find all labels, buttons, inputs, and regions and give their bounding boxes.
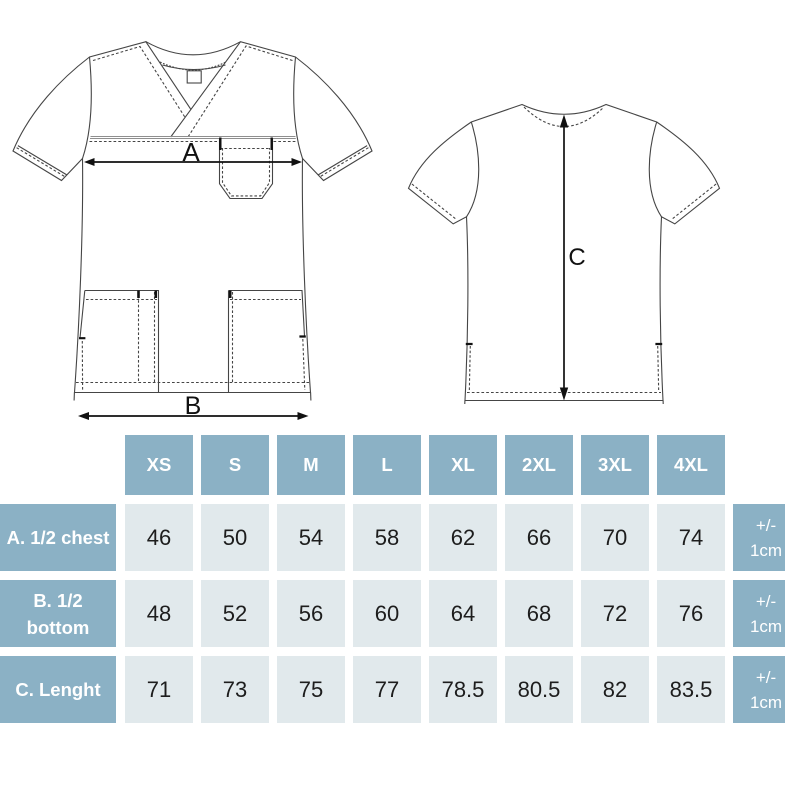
svg-text:C: C xyxy=(568,244,585,271)
svg-text:B: B xyxy=(185,392,202,420)
svg-text:A: A xyxy=(182,137,200,167)
